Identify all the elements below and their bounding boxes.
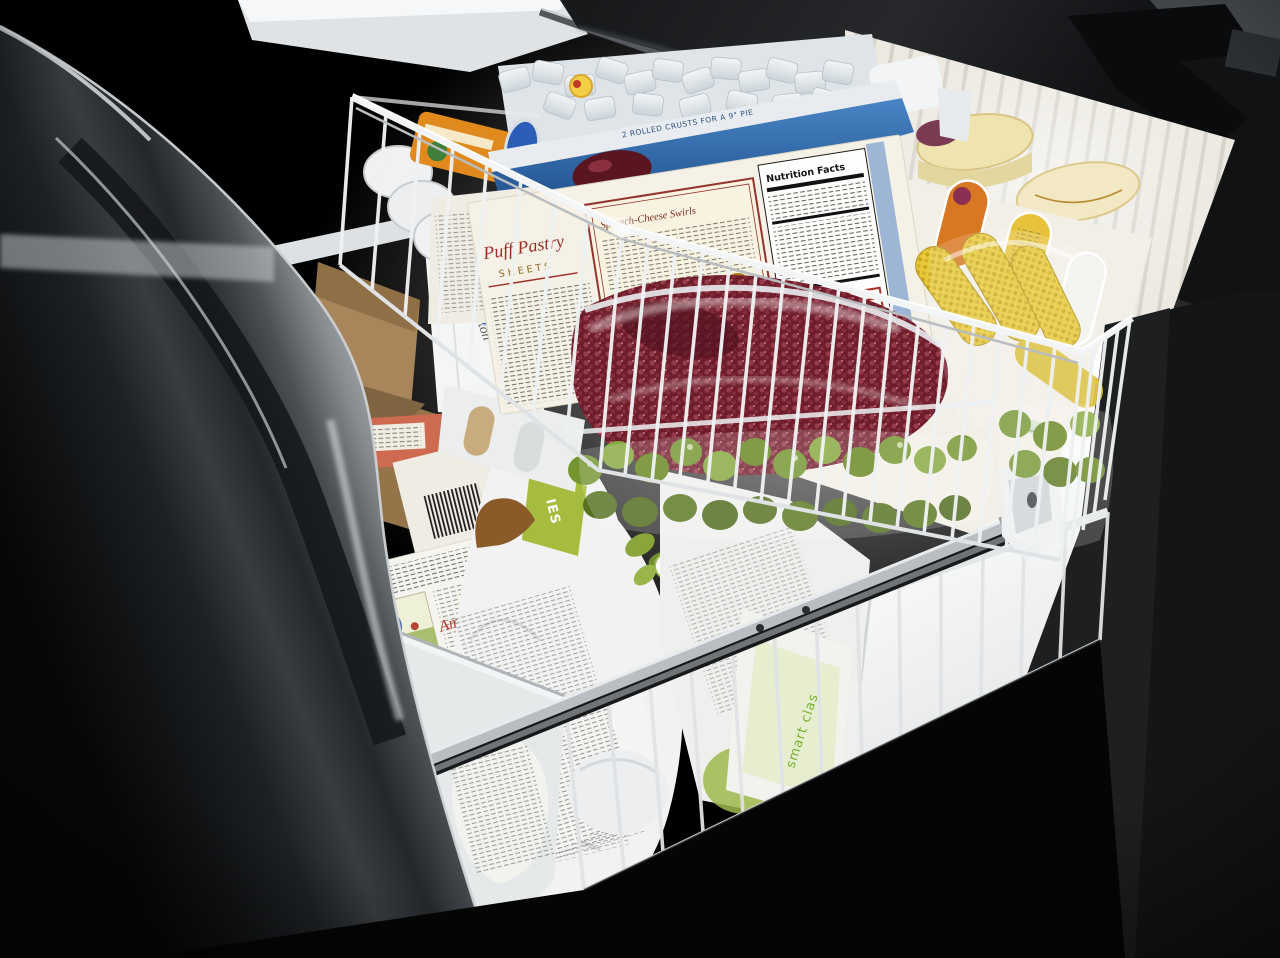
freezer-photo-stage: ton Amy's VA IES 10 — [0, 0, 1280, 958]
vignette — [0, 0, 1280, 958]
freezer-photo: ton Amy's VA IES 10 — [0, 0, 1280, 958]
